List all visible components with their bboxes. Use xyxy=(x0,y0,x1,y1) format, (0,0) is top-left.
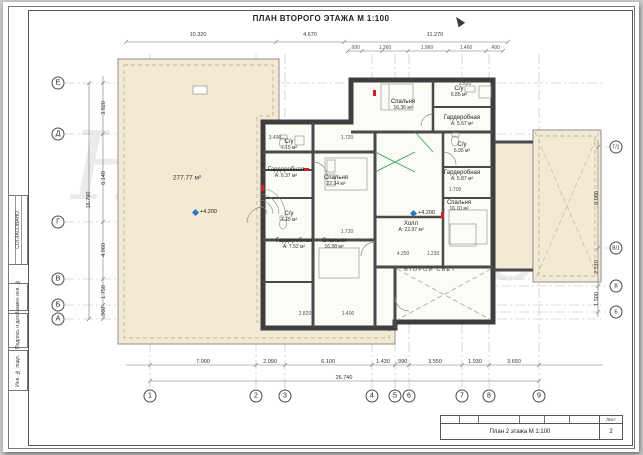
axis-bubble: В/1 xyxy=(610,242,623,255)
drawing-name: План 2 этажа М 1:100 xyxy=(441,424,600,439)
room-label: С/у7.15 м² xyxy=(281,211,297,223)
room-label: ГардеробнаяА: 5.87 м² xyxy=(444,170,480,182)
axis-bubble: 6 xyxy=(403,390,416,403)
dim-label: .490 xyxy=(490,45,500,51)
axis-bubble: В xyxy=(52,273,65,286)
dim-label: 3.650 xyxy=(507,359,521,365)
axis-bubble: 5 xyxy=(389,390,402,403)
dim-label: 2.510 xyxy=(594,260,600,274)
second-light-label: ВТОРОЙ СВЕТ xyxy=(404,267,456,273)
dim-label: 2.090 xyxy=(263,359,277,365)
dim-label: 4.960 xyxy=(101,243,107,257)
dim-label: 1.360 xyxy=(379,45,392,51)
dim-label: 3.820 xyxy=(101,101,107,115)
room-label: С/у7.15 м² xyxy=(281,139,297,151)
axis-bubble: Г xyxy=(52,216,65,229)
axis-bubble: 1 xyxy=(144,390,157,403)
dim-label: 1.750 xyxy=(101,285,107,299)
dim-label: 1.700 xyxy=(449,187,462,193)
dim-label: 6.100 xyxy=(321,359,335,365)
title-block-header-row: Лист xyxy=(441,416,622,424)
level-marker: +4.200 xyxy=(193,209,217,215)
dim-label: .690 xyxy=(350,45,360,51)
dim-label: .960 xyxy=(101,307,107,318)
room-label: С/у6.95 м² xyxy=(454,142,470,154)
room-label: ГардеробнаяА: 5.67 м² xyxy=(444,115,480,127)
axis-bubble: Б xyxy=(610,306,623,319)
dim-label: 7.000 xyxy=(196,359,210,365)
dim-label: 10.320 xyxy=(190,32,207,38)
room-label: ГардеробнаяА: 7.52 м² xyxy=(276,238,312,250)
level-diamond-icon xyxy=(192,208,199,215)
room-label: Спальня16.10 м² xyxy=(447,200,471,212)
axis-bubble: 2 xyxy=(250,390,263,403)
screenshot-root: Hauses Hauses ПЛАН ВТОРОГО ЭТАЖА М 1:100… xyxy=(0,0,643,455)
room-label: Спальня22.34 м² xyxy=(324,175,348,187)
dim-total-label: 26.740 xyxy=(336,375,353,381)
dim-label: 1.720 xyxy=(341,229,354,235)
dim-label: 1.500 xyxy=(594,292,600,306)
axis-bubble: 7 xyxy=(456,390,469,403)
dim-label: 1.400 xyxy=(342,311,355,317)
dim-label: 6.140 xyxy=(101,171,107,185)
axis-bubble: Е xyxy=(52,77,65,90)
dim-label: 1.960 xyxy=(421,45,434,51)
axis-bubble: 3 xyxy=(279,390,292,403)
dim-label: 2.820 xyxy=(299,311,312,317)
axis-bubble: Б xyxy=(52,299,65,312)
room-label: ГардеробнаяА: 6.37 м² xyxy=(268,167,304,179)
level-marker: +4.200 xyxy=(411,210,435,216)
title-block: Лист План 2 этажа М 1:100 2 xyxy=(440,415,623,440)
axis-bubble: В xyxy=(610,280,623,293)
axis-bubble: 8 xyxy=(483,390,496,403)
dim-label: 3.490 xyxy=(269,135,282,141)
room-label: С/у6.85 м² xyxy=(451,86,467,98)
sheet-label: Лист xyxy=(600,416,622,423)
dim-label: 1.460 xyxy=(460,45,473,51)
dim-label: 16.790 xyxy=(86,192,92,209)
room-label: Спальня16.36 м² xyxy=(391,99,415,111)
plan-text-overlay: Спальня16.36 м²С/у6.85 м²ГардеробнаяА: 5… xyxy=(3,2,643,455)
room-label: Спальня16.08 м² xyxy=(322,238,346,250)
dim-label: 1.720 xyxy=(341,135,354,141)
axis-bubble: 9 xyxy=(533,390,546,403)
axis-bubble: А xyxy=(52,313,65,326)
terrace-area-label: 277.77 м² xyxy=(173,175,201,182)
drawing-sheet: Hauses Hauses ПЛАН ВТОРОГО ЭТАЖА М 1:100… xyxy=(3,2,639,452)
dim-label: 11.270 xyxy=(427,32,443,38)
axis-bubble: 4 xyxy=(366,390,379,403)
axis-bubble: Г/1 xyxy=(610,141,623,154)
axis-bubble: Д xyxy=(52,128,65,141)
room-label: ХоллА: 22.97 м² xyxy=(398,221,423,233)
dim-label: 6.060 xyxy=(594,191,600,205)
dim-label: 2.520 xyxy=(459,81,472,87)
dim-label: .990 xyxy=(397,359,408,365)
dim-label: 3.550 xyxy=(428,359,442,365)
level-diamond-icon xyxy=(410,209,417,216)
dim-label: 1.230 xyxy=(427,251,440,257)
dim-label: 1.430 xyxy=(376,359,390,365)
sheet-number: 2 xyxy=(600,424,622,439)
dim-label: 4.250 xyxy=(397,251,410,257)
dim-label: 1.930 xyxy=(468,359,482,365)
dim-label: 4.670 xyxy=(303,32,317,38)
